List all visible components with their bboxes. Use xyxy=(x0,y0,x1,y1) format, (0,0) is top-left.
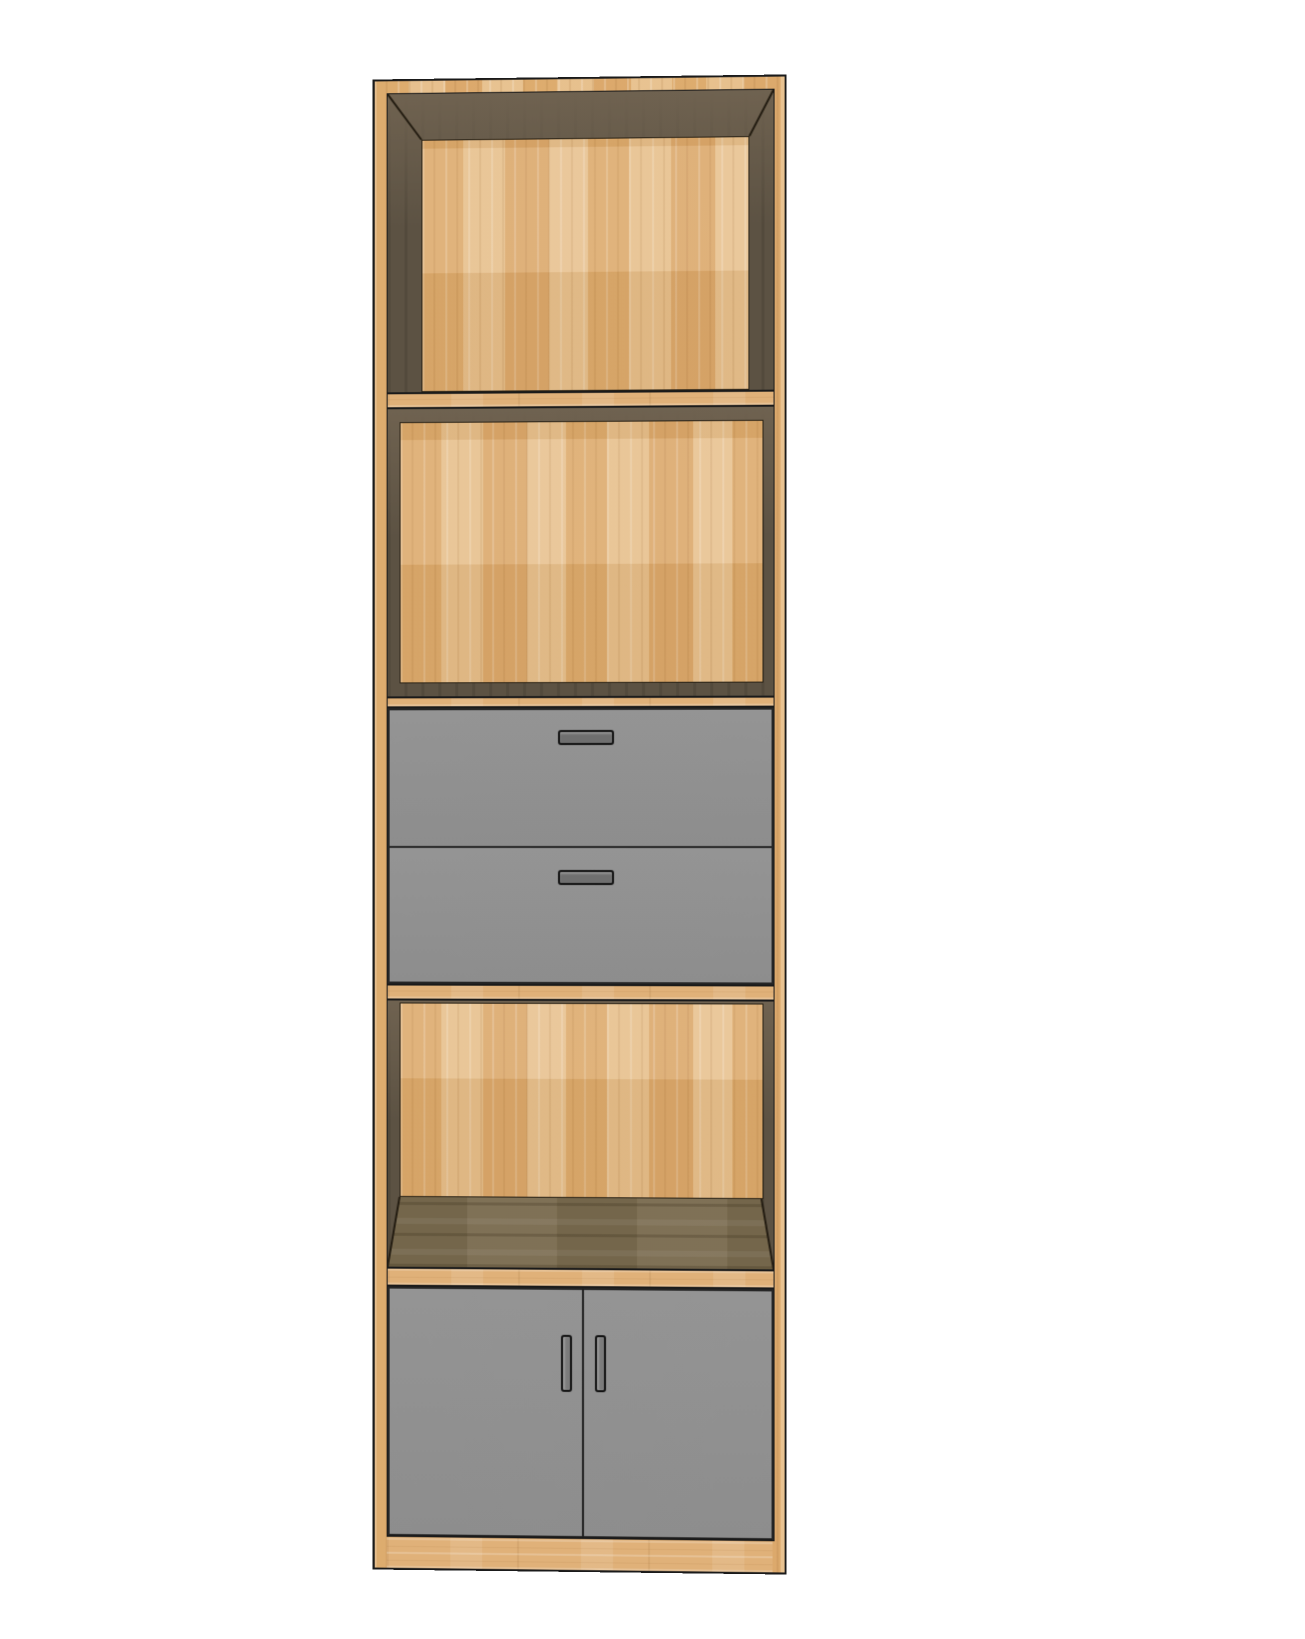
door-left[interactable] xyxy=(388,1287,583,1538)
open-compartment-3 xyxy=(388,1000,774,1269)
back-panel-2 xyxy=(400,420,764,684)
page-background xyxy=(0,0,1305,1639)
open-compartment-1 xyxy=(388,90,774,393)
door-right[interactable] xyxy=(583,1288,774,1540)
drawer-2-front[interactable] xyxy=(388,847,774,985)
base-rail xyxy=(387,1535,773,1573)
drawer-2-handle[interactable] xyxy=(558,870,614,885)
drawer-1-front[interactable] xyxy=(388,708,774,847)
cabinet xyxy=(373,74,787,1574)
door-right-handle[interactable] xyxy=(595,1335,606,1392)
door-cabinet xyxy=(388,1287,774,1541)
drawer-1-handle[interactable] xyxy=(558,730,614,745)
door-left-handle[interactable] xyxy=(561,1335,572,1392)
back-panel-3 xyxy=(400,1002,764,1199)
compartment-3-floor xyxy=(388,1195,774,1270)
open-compartment-2 xyxy=(388,407,774,697)
shelf-2 xyxy=(388,696,774,709)
cabinet-interior xyxy=(387,89,775,1542)
shelf-3 xyxy=(388,984,774,1002)
back-panel-1 xyxy=(421,136,749,392)
